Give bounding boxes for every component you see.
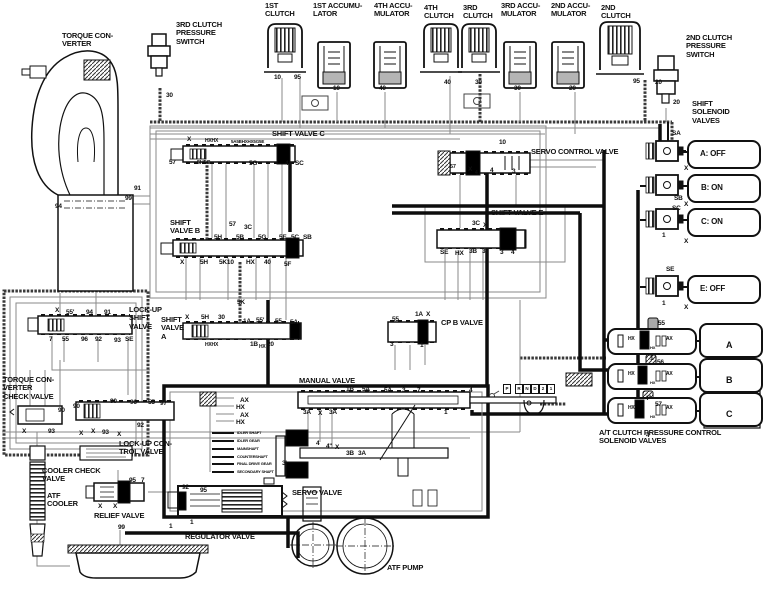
lube-item: IDLER GEAR	[237, 439, 260, 443]
port: 57	[229, 221, 236, 228]
port: 3B	[469, 248, 477, 255]
port: 4	[646, 432, 649, 439]
shift-solenoid-a-icon	[646, 141, 683, 161]
port: X	[91, 428, 95, 435]
port: HX	[455, 250, 464, 257]
port: SE	[125, 336, 133, 343]
port: SA	[672, 130, 681, 137]
pressure-switch-icons	[148, 34, 678, 103]
port: 92	[137, 422, 144, 429]
port: 55	[62, 336, 69, 343]
shift-solenoid-valves-label: SHIFT SOLENOID VALVES	[692, 100, 730, 125]
port: 3	[512, 168, 515, 175]
cpc-c-letter: C	[726, 409, 732, 419]
port: 93	[102, 429, 109, 436]
port: SE	[440, 249, 448, 256]
port: X	[98, 503, 102, 510]
port: 90	[73, 403, 80, 410]
port: 5H	[201, 314, 209, 321]
port: 94	[55, 203, 62, 210]
port: 20	[267, 341, 274, 348]
port: 5K	[237, 299, 245, 306]
port: 30	[475, 79, 482, 86]
port: X	[55, 307, 59, 314]
port: 4	[490, 167, 493, 174]
port: X	[335, 444, 339, 451]
port: 10	[333, 85, 340, 92]
port: 7	[49, 336, 52, 343]
cooler-check-valve-icon	[30, 446, 45, 460]
2nd-accumulator-label: 2ND ACCU- MULATOR	[551, 2, 590, 19]
port: 56	[657, 359, 664, 366]
solenoid-b-state: B: ON	[701, 184, 723, 193]
port: 7	[417, 387, 420, 394]
solenoid-c-state-box	[688, 209, 760, 236]
cpb-valve-label: CP B VALVE	[441, 319, 483, 327]
port: 20	[655, 79, 662, 86]
port: 40	[264, 259, 271, 266]
cpc-b-letter: B	[726, 375, 732, 385]
2nd-clutch-label: 2ND CLUTCH	[601, 4, 631, 21]
port: 3A	[358, 450, 366, 457]
port: 40	[379, 85, 386, 92]
clutch-icons	[264, 22, 644, 74]
cpb-valve-icon	[388, 320, 436, 344]
port: X	[318, 410, 322, 417]
port: 5B	[236, 234, 244, 241]
port: 3	[390, 341, 393, 348]
port: 97	[160, 400, 167, 407]
port: X	[684, 165, 688, 172]
servo-valve-icon	[276, 405, 448, 521]
relief-valve-icon	[86, 481, 144, 503]
port: 1	[190, 519, 193, 526]
port: AX	[666, 337, 673, 343]
port: 90	[58, 407, 65, 414]
port: 7	[141, 477, 144, 484]
port: 55	[148, 399, 155, 406]
port: 57	[655, 401, 662, 408]
port: 95	[294, 74, 301, 81]
1st-accumulator-label: 1ST ACCUMU- LATOR	[313, 2, 362, 19]
shift-solenoid-b-icon	[646, 175, 683, 195]
port: 1B	[346, 386, 354, 393]
torque-converter-label: TORQUE CON- VERTER	[62, 32, 113, 49]
torque-converter-check-valve-icon	[10, 406, 62, 424]
port: 4''	[326, 443, 332, 450]
shift-solenoid-e-icon	[646, 276, 683, 296]
lube-item: FINAL DRIVE GEAR	[237, 462, 272, 466]
port: 55'	[66, 309, 74, 316]
port: 1B	[250, 341, 258, 348]
port: 4	[316, 440, 319, 447]
port: 96	[81, 336, 88, 343]
port: HX	[650, 415, 655, 419]
port: 3'	[482, 248, 487, 255]
port: 90	[110, 398, 117, 405]
relief-valve-label: RELIEF VALVE	[94, 512, 144, 520]
port: 4	[469, 387, 472, 394]
port: 4	[475, 171, 478, 177]
lube-hx-2: HX	[236, 419, 245, 426]
lock-up-shift-valve-icon	[28, 315, 132, 334]
servo-valve-label: SERVO VALVE	[292, 489, 342, 497]
cpc-a-letter: A	[726, 340, 732, 350]
gear-position-p: P	[503, 384, 511, 394]
hydraulic-circuit-diagram: TORQUE CON- VERTER3RD CLUTCH PRESSURE SW…	[0, 0, 765, 601]
gear-position-1: 1	[547, 384, 555, 394]
shift-valve-b-label: SHIFT VALVE B	[170, 219, 200, 236]
port: 3B	[346, 450, 354, 457]
port: X	[79, 430, 83, 437]
port: 92	[95, 336, 102, 343]
port: 1	[169, 523, 172, 530]
port: X	[684, 304, 688, 311]
port: 91	[134, 185, 141, 192]
lube-item: IDLER SHAFT	[237, 431, 261, 435]
atf-cooler-label: ATF COOLER	[47, 492, 78, 509]
port: 93	[48, 428, 55, 435]
port: X	[426, 311, 430, 318]
port: 40	[444, 79, 451, 86]
port: 4	[285, 160, 288, 167]
solenoid-b-state-box	[688, 175, 760, 202]
port: 55'	[256, 317, 264, 324]
3rd-clutch-label: 3RD CLUTCH	[463, 4, 493, 21]
port: 5H5C	[197, 160, 210, 166]
port: 1	[662, 300, 665, 307]
port: SB	[674, 195, 683, 202]
port: 1	[662, 232, 665, 239]
3rd-clutch-pressure-switch-label: 3RD CLUTCH PRESSURE SWITCH	[176, 21, 222, 46]
port: HX	[628, 337, 635, 343]
gear-position-d: D	[531, 384, 539, 394]
port: 1A	[243, 318, 251, 325]
port: 93	[114, 337, 121, 344]
shift-valve-c-label: SHIFT VALVE C	[272, 130, 325, 138]
shift-valve-e-label: SHIFT VALVE E	[491, 209, 543, 217]
lube-hx-1: HX	[236, 404, 245, 411]
shift-valve-c-icon	[171, 144, 295, 164]
port: X	[185, 314, 189, 321]
port: HX	[259, 345, 266, 351]
lube-item: SECONDARY SHAFT	[237, 470, 274, 474]
port: 5A	[362, 386, 370, 393]
port: 3	[500, 249, 503, 256]
regulator-valve-label: REGULATOR VALVE	[185, 533, 255, 541]
port: 1	[420, 342, 423, 349]
port: AX	[666, 372, 673, 378]
lock-up-shift-valve-label: LOCK-UP SHIFT VALVE	[129, 306, 162, 331]
shift-valve-a-icon	[183, 322, 301, 339]
torque-converter-check-valve-label: TORQUE CON- VERTER CHECK VALVE	[3, 376, 54, 401]
port: SC	[672, 205, 681, 212]
port: 99	[118, 524, 125, 531]
port: 3A	[329, 409, 337, 416]
port: 20	[673, 99, 680, 106]
solenoid-a-state: A: OFF	[700, 150, 725, 159]
port: 3	[402, 387, 405, 394]
port: 10	[274, 74, 281, 81]
solenoid-c-state: C: ON	[701, 218, 723, 227]
port: 3C	[244, 224, 252, 231]
servo-control-valve-label: SERVO CONTROL VALVE	[531, 148, 618, 156]
port: X	[483, 222, 487, 229]
port: 92	[182, 484, 189, 491]
port: 95	[200, 487, 207, 494]
port: HX	[628, 372, 635, 378]
servo-control-valve-icon	[438, 151, 530, 175]
gear-position-n: N	[523, 384, 531, 394]
1st-clutch-label: 1ST CLUTCH	[265, 2, 295, 19]
port: HX	[650, 346, 655, 350]
oil-pan-strainer-icon	[68, 545, 208, 578]
at-cpc-solenoid-valves-label: A/T CLUTCH PRESSURE CONTROL SOLENOID VAL…	[599, 429, 721, 446]
port: 5C	[291, 234, 299, 241]
port: 5G	[258, 234, 266, 241]
port: 5H	[214, 234, 222, 241]
port: HX	[650, 381, 655, 385]
port: 5K10	[219, 259, 234, 266]
port: X	[22, 428, 26, 435]
lock-up-control-valve-label: LOCK-UP CON- TROL VALVE	[119, 440, 172, 457]
port: SB	[303, 234, 312, 241]
port: 3'	[282, 460, 287, 467]
port: 96	[130, 399, 137, 406]
port: 20	[569, 85, 576, 92]
port: 95	[633, 78, 640, 85]
port: 55	[658, 320, 665, 327]
cooler-check-valve-label: COOLER CHECK VALVE	[42, 467, 100, 484]
3rd-accumulator-label: 3RD ACCU- MULATOR	[501, 2, 540, 19]
port: SC	[295, 160, 304, 167]
port: 1	[650, 355, 653, 362]
lube-item: COUNTERSHAFT	[237, 455, 268, 459]
port: X	[113, 503, 117, 510]
port: 3A	[303, 409, 311, 416]
gear-position-r: R	[515, 384, 523, 394]
port: 94	[86, 309, 93, 316]
port: X	[180, 259, 184, 266]
port: 91	[104, 309, 111, 316]
port: X	[684, 201, 688, 208]
port: 99	[125, 195, 132, 202]
shift-valve-a-label: SHIFT VALVE A	[161, 316, 184, 341]
atf-pump-icon	[290, 516, 394, 576]
shift-valve-e-icon	[437, 228, 526, 250]
port: X	[117, 431, 121, 438]
port: 1	[444, 409, 447, 416]
port: 30	[218, 314, 225, 321]
port: X	[187, 136, 191, 143]
port: 5A	[290, 319, 298, 326]
torque-converter-icon	[22, 51, 133, 291]
port: 57	[450, 164, 456, 170]
port: 4''	[645, 395, 651, 402]
port: 5A5BHXHX5G5E	[231, 139, 264, 144]
port: 1A	[415, 311, 423, 318]
port: HXHX	[205, 343, 218, 349]
port: 30	[514, 85, 521, 92]
4th-clutch-label: 4TH CLUTCH	[424, 4, 454, 21]
port: 10	[499, 139, 506, 146]
atf-pump-label: ATF PUMP	[387, 564, 423, 572]
manual-valve-label: MANUAL VALVE	[299, 377, 355, 385]
port: 55	[275, 318, 282, 325]
port: 5H	[200, 259, 208, 266]
port: 95	[129, 477, 136, 484]
port: AX	[666, 406, 673, 412]
gear-position-2: 2	[539, 384, 547, 394]
port: 3C	[472, 220, 480, 227]
2nd-clutch-pressure-switch-label: 2ND CLUTCH PRESSURE SWITCH	[686, 34, 732, 59]
port: 5A	[384, 387, 392, 394]
port: HX	[628, 406, 635, 412]
port: 57	[169, 159, 176, 166]
port: X	[684, 238, 688, 245]
solenoid-e-state: E: OFF	[700, 285, 725, 294]
port: 55	[392, 316, 399, 323]
port: 5E	[279, 234, 287, 241]
4th-accumulator-label: 4TH ACCU- MULATOR	[374, 2, 412, 19]
port: HXHX	[205, 139, 218, 145]
port: 30	[166, 92, 173, 99]
port: X	[468, 166, 472, 173]
port: SE	[666, 266, 674, 273]
port: 4	[511, 249, 514, 256]
port: 5G	[249, 160, 257, 167]
port: HX	[246, 259, 255, 266]
port: 5F	[284, 261, 291, 268]
lube-item: MAINSHAFT	[237, 447, 259, 451]
